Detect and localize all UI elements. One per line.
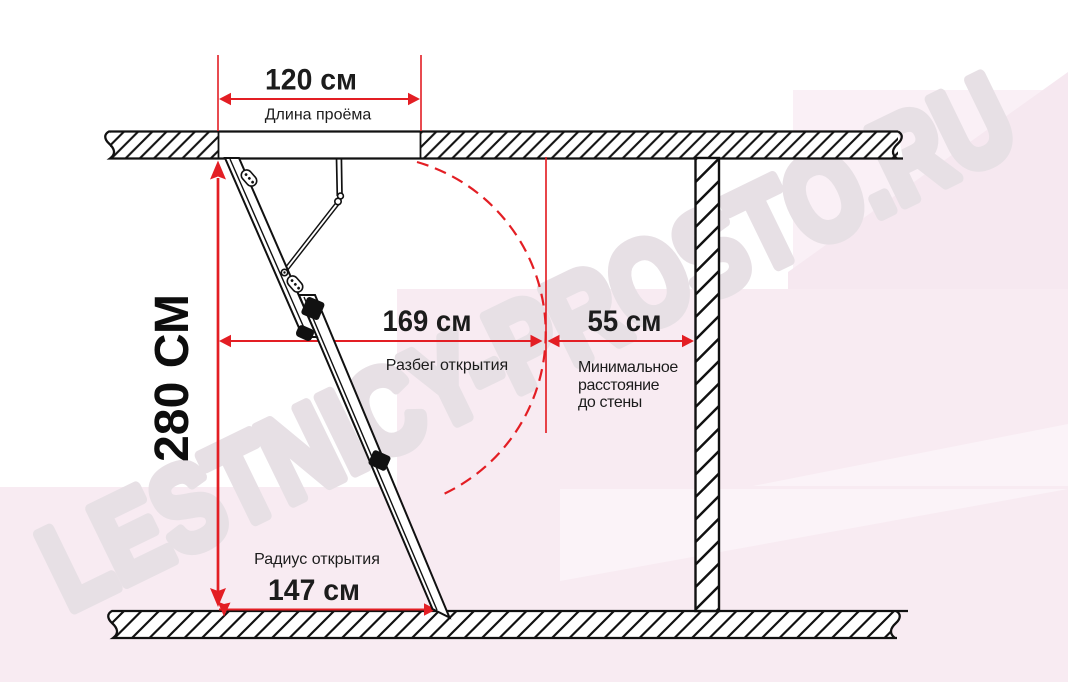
- svg-text:Длина проёма: Длина проёма: [265, 107, 372, 124]
- svg-text:Радиус открытия: Радиус открытия: [254, 551, 380, 568]
- svg-text:120 см: 120 см: [265, 64, 357, 97]
- svg-text:169 см: 169 см: [383, 305, 472, 338]
- svg-text:280 СМ: 280 СМ: [146, 294, 199, 462]
- svg-text:Разбег открытия: Разбег открытия: [386, 357, 508, 374]
- svg-text:до стены: до стены: [578, 394, 642, 411]
- svg-text:55 см: 55 см: [588, 305, 662, 338]
- svg-text:расстояние: расстояние: [578, 377, 660, 394]
- svg-text:Минимальное: Минимальное: [578, 359, 678, 376]
- svg-text:147 см: 147 см: [268, 574, 360, 607]
